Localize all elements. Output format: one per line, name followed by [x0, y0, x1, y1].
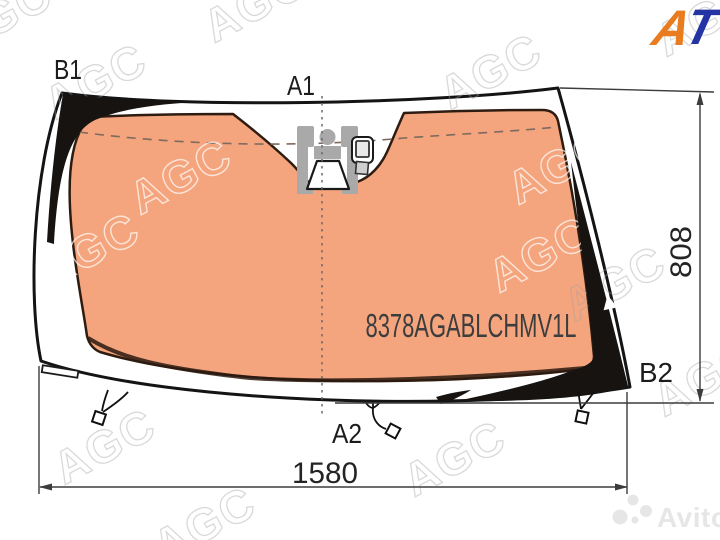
arrow-left — [39, 484, 52, 491]
agc-watermark: AGC — [194, 0, 314, 52]
bracket-left-ear — [297, 126, 314, 147]
avito-dot — [628, 495, 639, 506]
part-number: 8378AGABLCHMV1L — [366, 307, 577, 344]
arrow-right — [615, 484, 628, 491]
windshield-diagram: AGC AGC AGC AGC AGC AGC AGC AGC AGC AGC … — [0, 0, 720, 540]
agc-watermark: AGC — [144, 476, 264, 540]
label-b2: B2 — [639, 357, 673, 388]
mounting-clip-center — [366, 402, 400, 438]
agc-watermark: AGC — [0, 0, 60, 64]
arrow-up — [697, 92, 704, 105]
avito-dot — [640, 505, 652, 517]
avito-dot — [632, 517, 639, 524]
avito-dot — [613, 510, 628, 525]
label-a1: A1 — [287, 70, 315, 101]
agc-watermark: AGC — [394, 410, 514, 507]
bracket-left-arm — [297, 145, 308, 191]
avito-wordmark: Avito — [657, 502, 720, 533]
aux-sensor-window — [356, 141, 369, 157]
bracket-nose-bar — [314, 146, 341, 159]
height-value: 808 — [665, 226, 698, 278]
at-logo: T A — [645, 0, 720, 56]
label-a2: A2 — [332, 418, 362, 449]
width-value: 1580 — [292, 457, 358, 490]
height-extension-top — [560, 88, 714, 92]
aux-sensor-tab — [355, 161, 368, 174]
label-b1: B1 — [54, 54, 82, 85]
windshield-product-image: AGC AGC AGC AGC AGC AGC AGC AGC AGC AGC … — [0, 0, 720, 540]
avito-watermark: Avito — [613, 495, 720, 534]
